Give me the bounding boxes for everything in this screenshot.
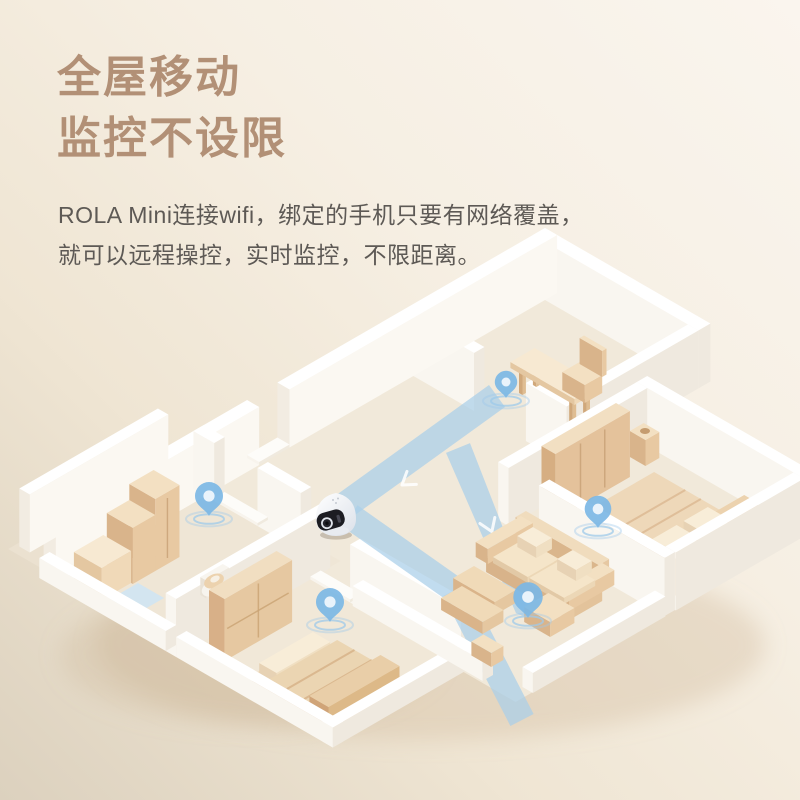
description-line-1: ROLA Mini连接wifi，绑定的手机只要有网络覆盖， xyxy=(58,195,584,235)
page-description: ROLA Mini连接wifi，绑定的手机只要有网络覆盖， 就可以远程操控，实时… xyxy=(58,195,584,275)
hero-text-block: 全屋移动 监控不设限 ROLA Mini连接wifi，绑定的手机只要有网络覆盖，… xyxy=(57,48,584,275)
promo-page: 全屋移动 监控不设限 ROLA Mini连接wifi，绑定的手机只要有网络覆盖，… xyxy=(0,0,800,800)
title-line-2: 监控不设限 xyxy=(57,109,584,170)
description-line-2: 就可以远程操控，实时监控，不限距离。 xyxy=(58,235,584,275)
page-title: 全屋移动 监控不设限 xyxy=(57,48,584,169)
title-line-1: 全屋移动 xyxy=(57,48,584,109)
